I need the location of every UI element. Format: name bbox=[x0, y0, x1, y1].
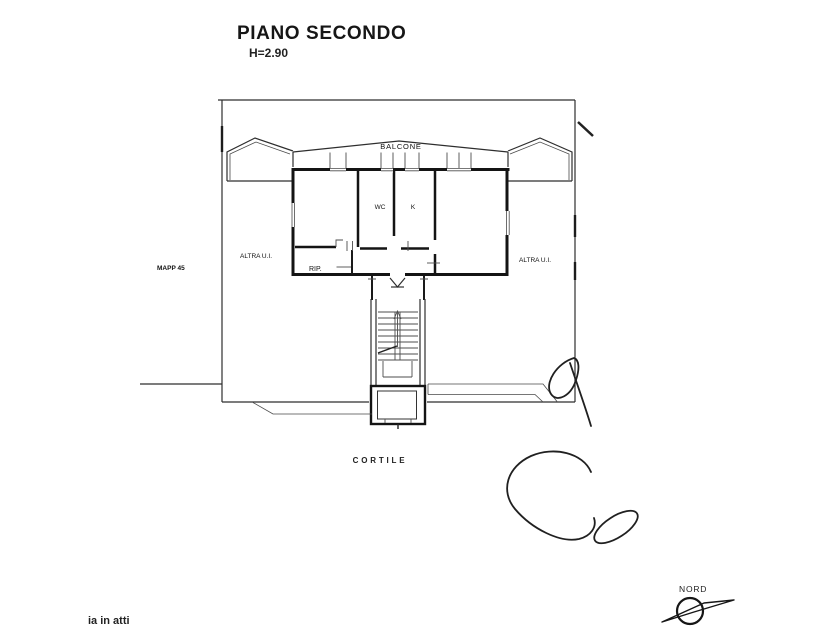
floor-height-label: H=2.90 bbox=[249, 46, 288, 60]
stray-mark bbox=[578, 122, 593, 136]
site-boundary bbox=[140, 100, 593, 402]
elevator-shaft bbox=[369, 385, 427, 429]
parcel-label: MAPP 45 bbox=[157, 265, 185, 272]
apartment-walls bbox=[292, 168, 510, 276]
floor-plan-page: PIANO SECONDO H=2.90 bbox=[0, 0, 824, 630]
plan-labels: BALCONE WC K RIP. ALTRA U.I. ALTRA U.I. … bbox=[157, 142, 551, 465]
north-compass: NORD bbox=[662, 584, 734, 624]
door-swing-icon bbox=[390, 278, 405, 287]
storage-label: RIP. bbox=[309, 266, 322, 273]
plan-header: PIANO SECONDO H=2.90 bbox=[237, 23, 406, 60]
interior-partitions bbox=[295, 171, 440, 274]
north-label: NORD bbox=[679, 584, 707, 594]
entrance-hall bbox=[368, 276, 428, 300]
right-unit-label: ALTRA U.I. bbox=[519, 257, 551, 264]
kitchen-label: K bbox=[411, 204, 416, 211]
balcony-label: BALCONE bbox=[380, 142, 421, 151]
stair-direction-arrow-icon bbox=[378, 311, 401, 353]
window-openings bbox=[291, 153, 511, 236]
compass-needle-icon bbox=[662, 600, 734, 622]
left-unit-label: ALTRA U.I. bbox=[240, 253, 272, 260]
page-title: PIANO SECONDO bbox=[237, 23, 406, 44]
wc-label: WC bbox=[375, 204, 386, 211]
courtyard-label: CORTILE bbox=[353, 456, 408, 465]
clipped-footer-text: ia in atti bbox=[88, 615, 130, 627]
floor-plan-drawing: PIANO SECONDO H=2.90 bbox=[0, 0, 824, 630]
staircase bbox=[371, 299, 425, 386]
